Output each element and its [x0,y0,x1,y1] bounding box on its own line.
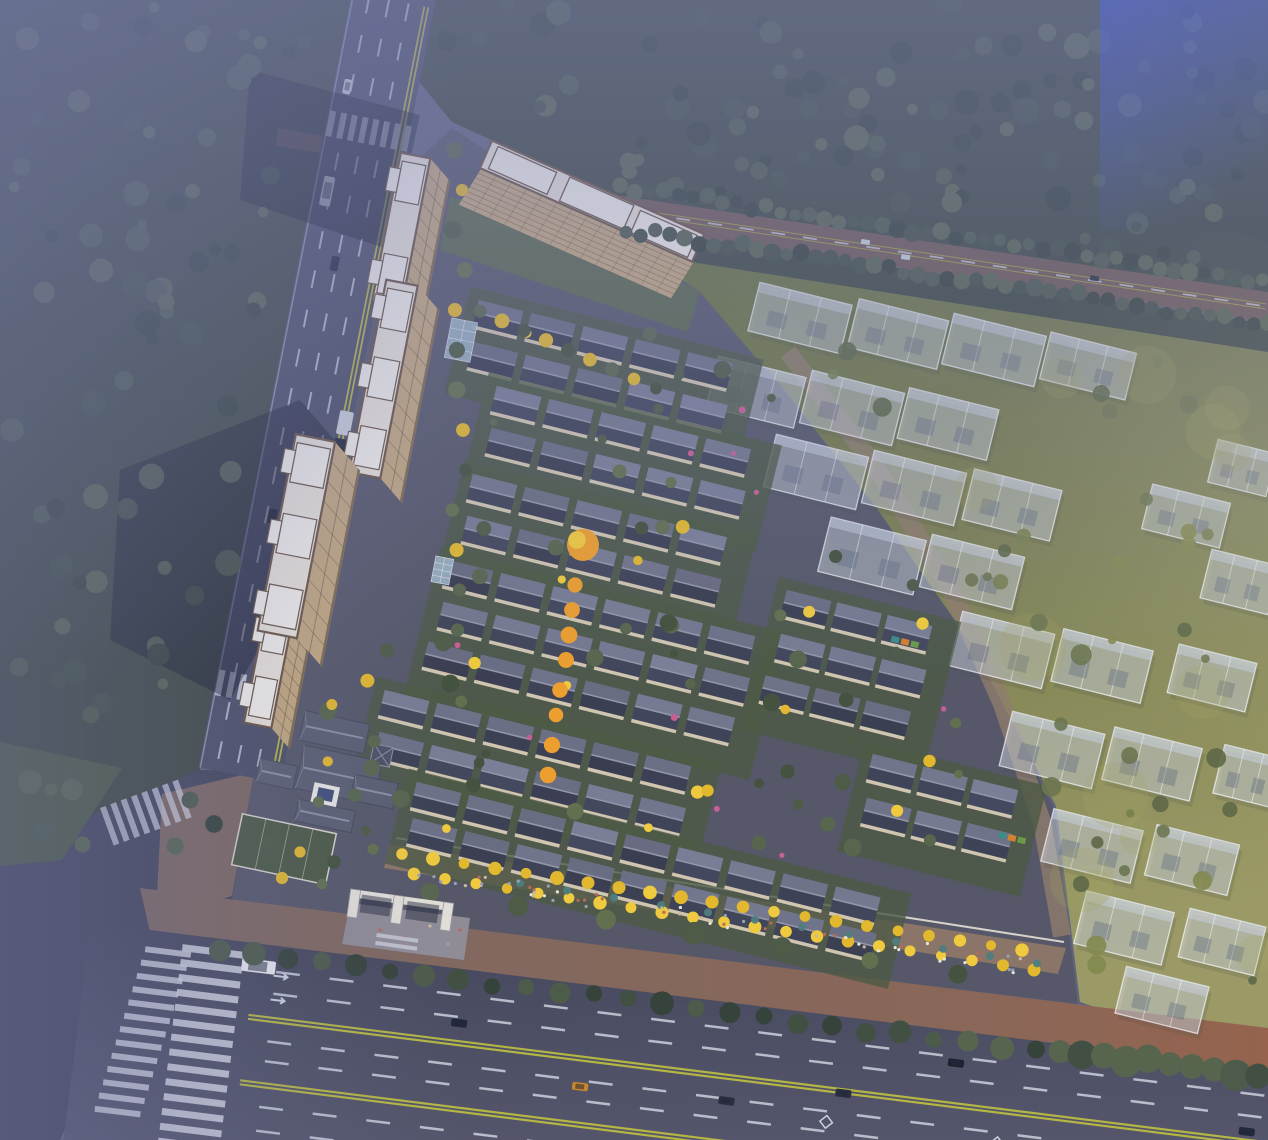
aerial-rendering: Bird's-eye dusk rendering of a residenti… [0,0,1268,1140]
haze-left-overlay [0,0,460,1140]
rendering-canvas [0,0,1268,1140]
haze-corner-glow [1100,0,1268,230]
